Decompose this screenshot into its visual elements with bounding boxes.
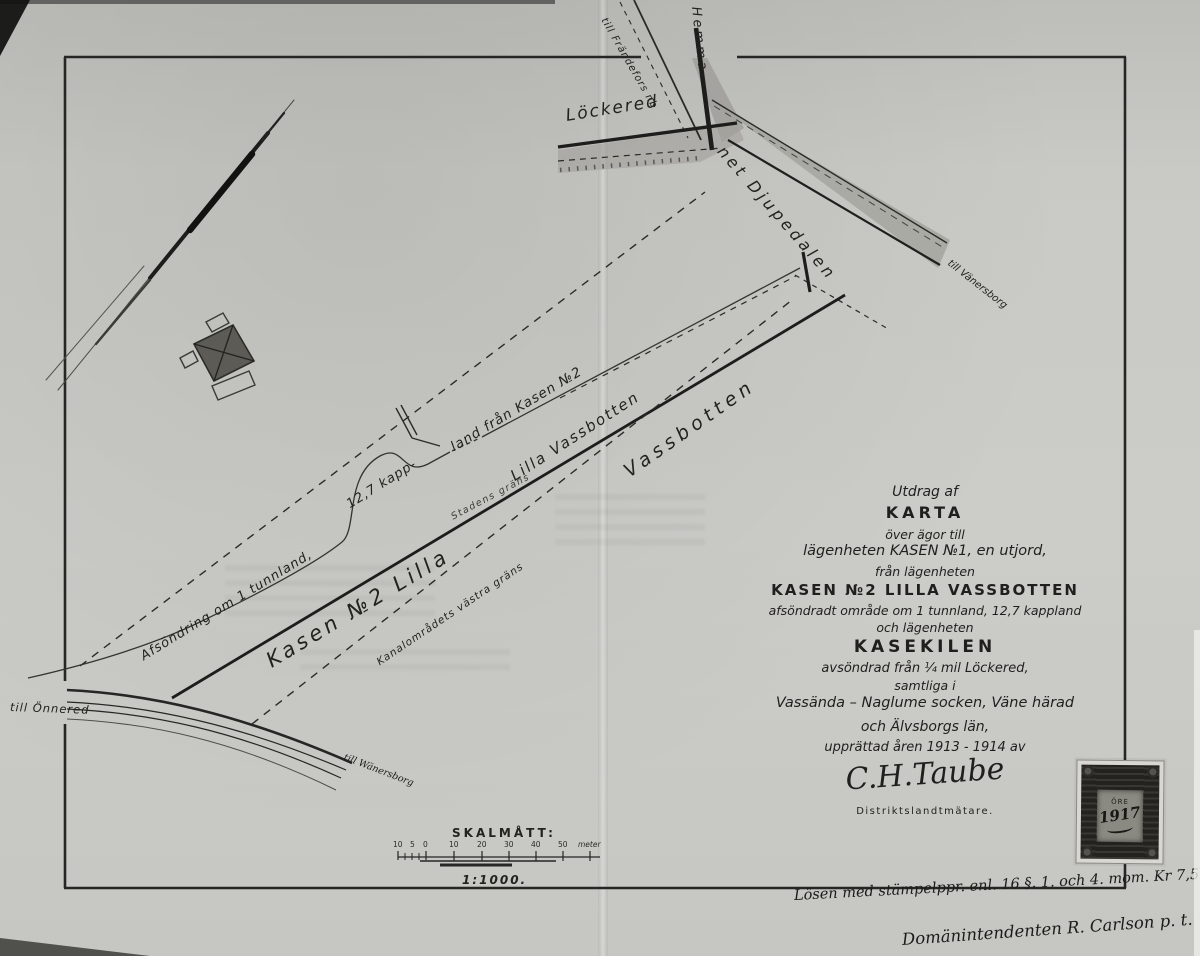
title-fran-lagenheten: från lägenheten: [705, 564, 1145, 579]
crease-line: [46, 100, 294, 390]
map-photo: Löckered till Frändefors nb Hemma- net D…: [0, 0, 1200, 956]
title-samtliga: samtliga i: [705, 678, 1145, 693]
title-afsondradt: afsöndradt område om 1 tunnland, 12,7 ka…: [705, 603, 1145, 618]
title-kasekilen: KASEKILEN: [705, 637, 1145, 657]
scale-tick: 10: [393, 840, 403, 849]
scale-tick: 5: [410, 840, 415, 849]
title-avsondrad: avsöndrad från ¼ mil Löckered,: [705, 661, 1145, 676]
scale-title: SKALMÅTT:: [452, 826, 556, 840]
scale-tick: 30: [504, 840, 514, 849]
title-vassanda-naglume: Vassända – Naglume socken, Väne härad: [705, 695, 1145, 711]
scale-tick: 50: [558, 840, 568, 849]
title-kasen2-lilla-vassbotten: KASEN №2 LILLA VASSBOTTEN: [705, 581, 1145, 599]
label-till-onnered: till Önnered: [10, 700, 90, 717]
scale-tick: 0: [423, 840, 428, 849]
revenue-stamp: ÖRE 1917: [1075, 760, 1164, 865]
scale-tick: 20: [477, 840, 487, 849]
scale-ruler: [398, 851, 600, 865]
building-symbol: [180, 313, 255, 400]
title-over-agor: över ägor till: [705, 527, 1145, 542]
title-alvsborgs-lan: och Älvsborgs län,: [705, 719, 1145, 735]
photo-edge-light: [1194, 630, 1200, 956]
revenue-stamp-center: ÖRE 1917: [1097, 790, 1144, 842]
scale-tick: 40: [531, 840, 541, 849]
revenue-stamp-face: ÖRE 1917: [1081, 765, 1160, 860]
scale-unit: meter: [578, 840, 601, 849]
title-och-lagenheten: och lägenheten: [705, 620, 1145, 635]
title-karta: KARTA: [705, 503, 1145, 522]
title-utdrag: Utdrag af: [705, 484, 1145, 500]
curved-road: [67, 690, 352, 790]
photo-edge-dark: [0, 0, 555, 4]
scale-tick: 10: [449, 840, 459, 849]
title-lagenheten-kasen1: lägenheten KASEN №1, en utjord,: [705, 543, 1145, 559]
scale-ratio: 1:1000.: [462, 873, 527, 887]
